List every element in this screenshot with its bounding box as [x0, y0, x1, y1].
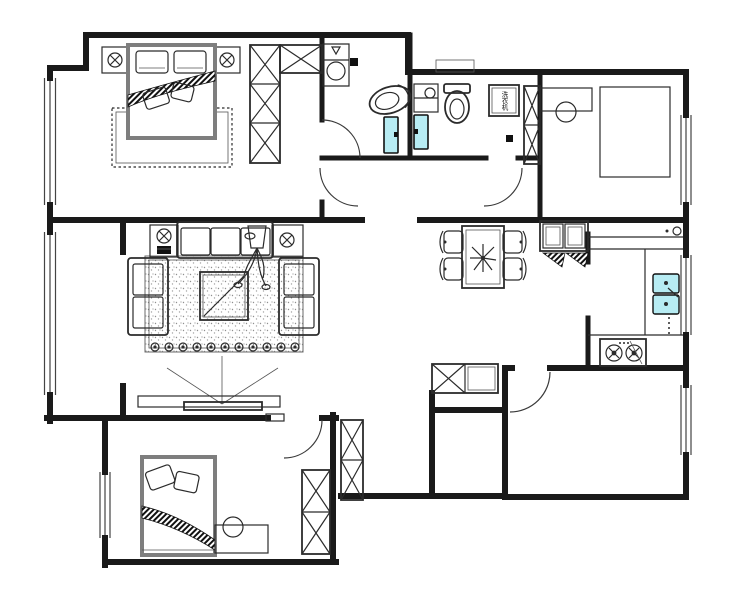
switch-box	[506, 135, 513, 142]
shower-glass-bath1	[384, 117, 398, 153]
switch-box	[350, 58, 358, 66]
single-bed	[142, 457, 215, 555]
floor-plan: 洗衣机	[0, 0, 740, 600]
floor-plan-page: 洗衣机	[0, 0, 740, 600]
washing-machine-label: 洗衣机	[500, 90, 508, 112]
shower-glass-bath2	[414, 115, 428, 149]
double-bed	[128, 45, 215, 138]
paper-background	[0, 0, 740, 600]
